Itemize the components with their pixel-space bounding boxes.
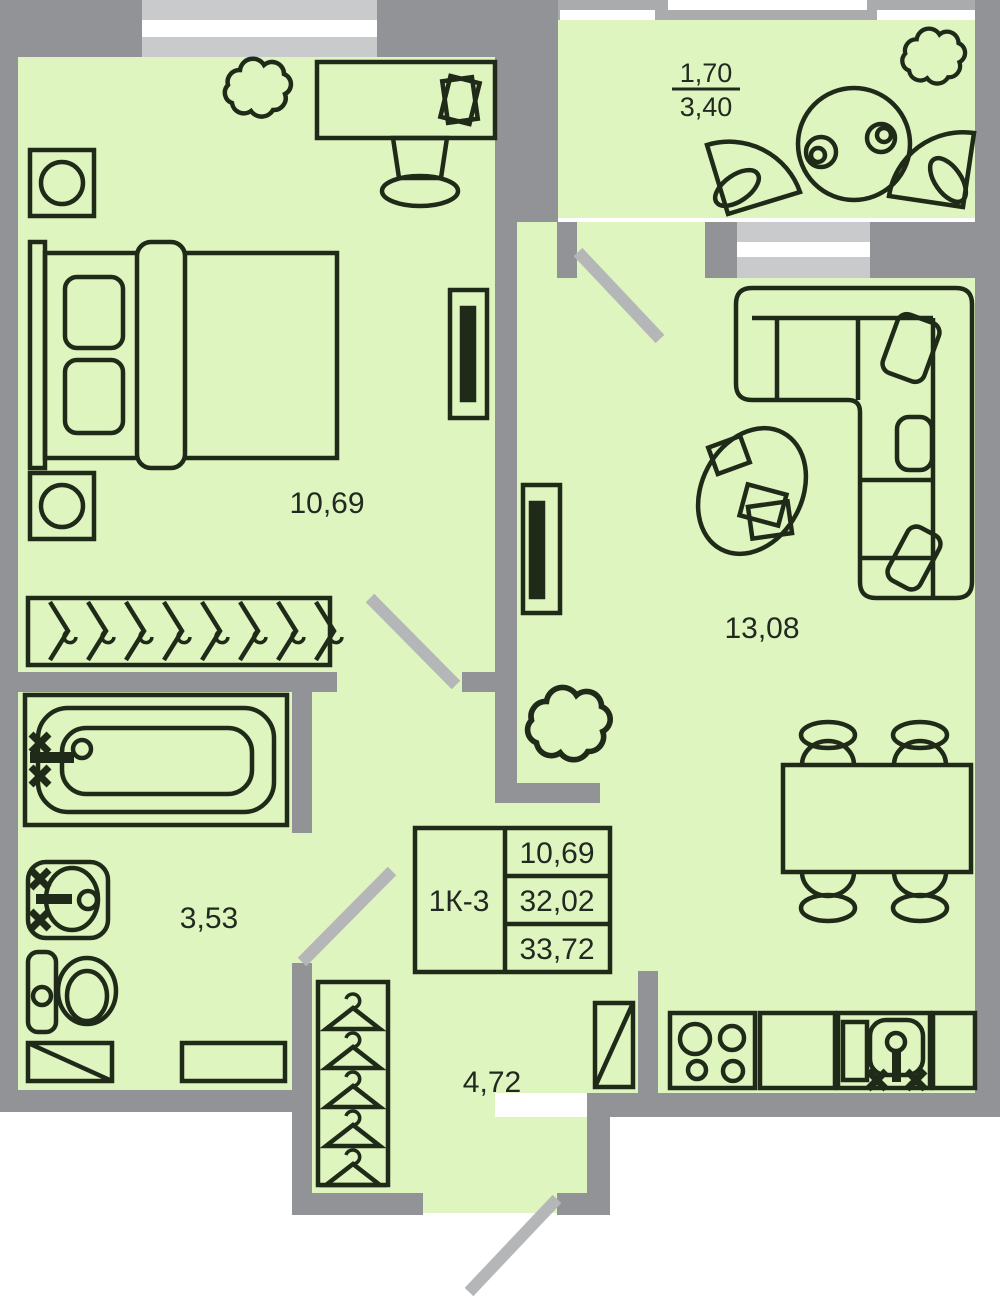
stamp-room-area: 10,69 — [519, 837, 594, 870]
bedroom-window — [142, 0, 377, 57]
floor-plan-page: 10,69 13,08 3,53 4,72 1,70 3,40 1К-3 10,… — [0, 0, 1000, 1297]
balcony-full-area-label: 3,40 — [680, 92, 733, 122]
bedroom-area-label: 10,69 — [289, 487, 364, 520]
floor-plan: 10,69 13,08 3,53 4,72 1,70 3,40 1К-3 10,… — [0, 0, 1000, 1297]
unit-type-label: 1К-3 — [429, 885, 490, 918]
bathroom-doorway-floor — [292, 833, 312, 963]
dining-table — [783, 765, 971, 872]
stamp-living-area: 32,02 — [519, 885, 594, 918]
stamp-total-area: 33,72 — [519, 933, 594, 966]
balcony-area-fraction: 1,70 3,40 — [672, 58, 740, 122]
balcony-reduced-area-label: 1,70 — [680, 58, 733, 88]
balcony-floor — [558, 20, 975, 218]
bathroom-area-label: 3,53 — [180, 902, 238, 935]
hallway-floor-lower — [312, 1117, 587, 1193]
hallway-area-label: 4,72 — [463, 1066, 521, 1099]
entry-threshold-floor — [423, 1193, 557, 1213]
living-area-label: 13,08 — [724, 612, 799, 645]
living-balcony-window — [737, 222, 870, 278]
